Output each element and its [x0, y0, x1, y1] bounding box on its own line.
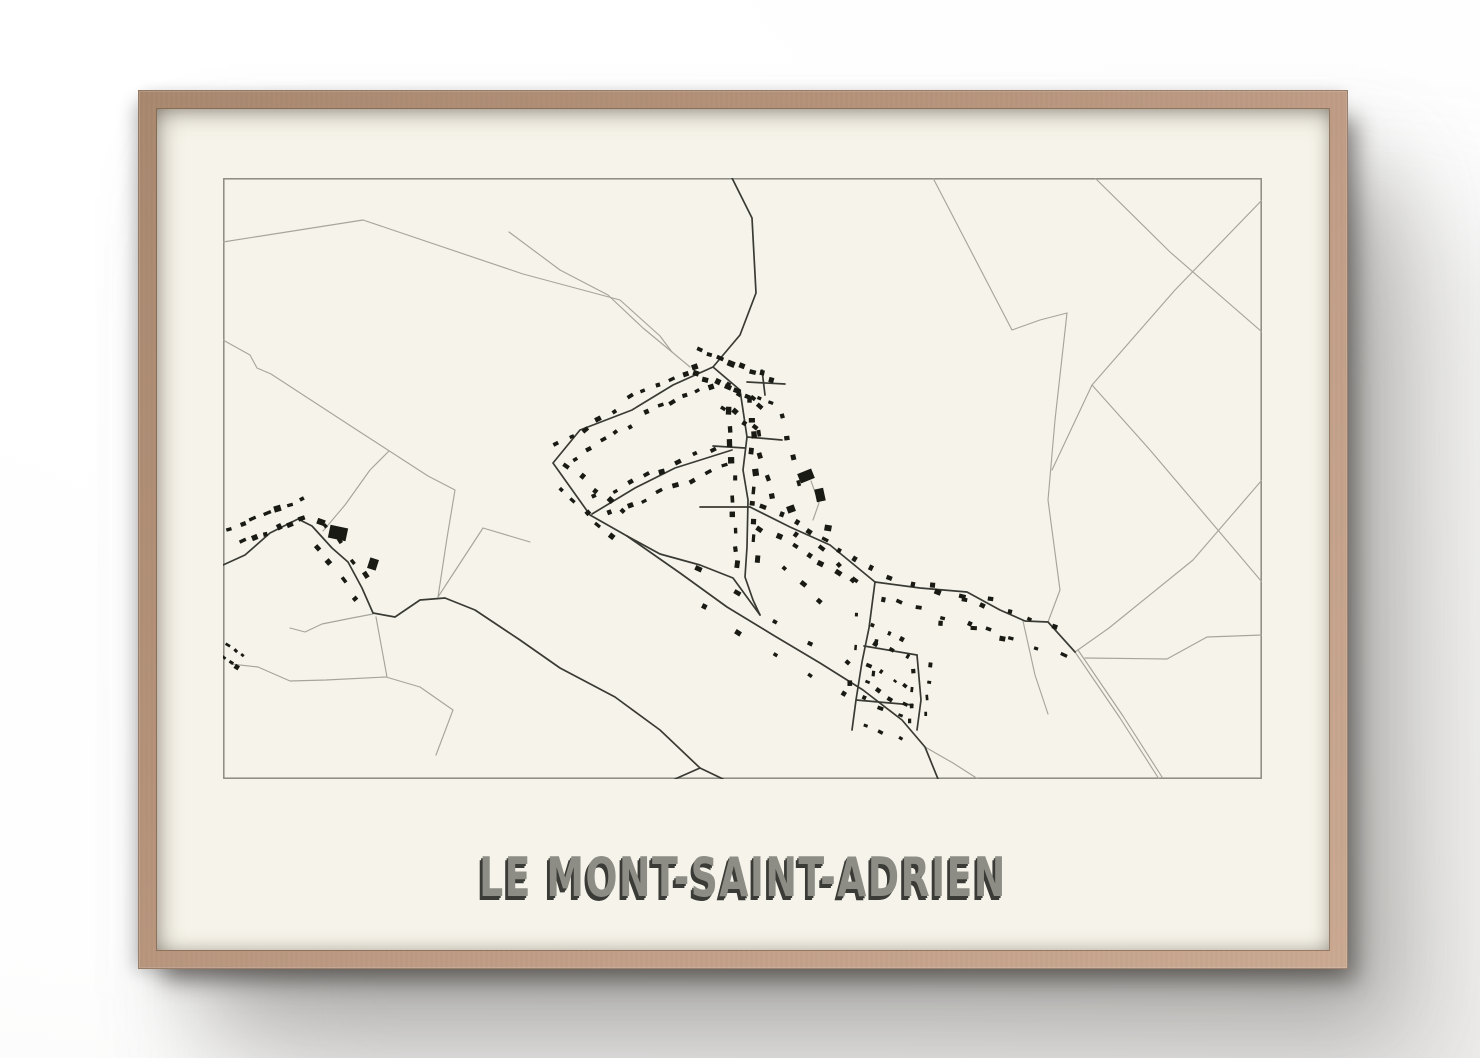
map-panel — [223, 178, 1262, 779]
buildings-layer — [223, 347, 1068, 741]
map-border — [224, 179, 1261, 778]
poster-title: LE MONT-SAINT-ADRIEN — [479, 850, 1007, 906]
map-figure — [223, 178, 1262, 779]
poster-frame: LE MONT-SAINT-ADRIEN — [138, 90, 1348, 969]
poster-title-row: LE MONT-SAINT-ADRIEN — [157, 850, 1329, 906]
poster-matte: LE MONT-SAINT-ADRIEN — [157, 109, 1329, 950]
